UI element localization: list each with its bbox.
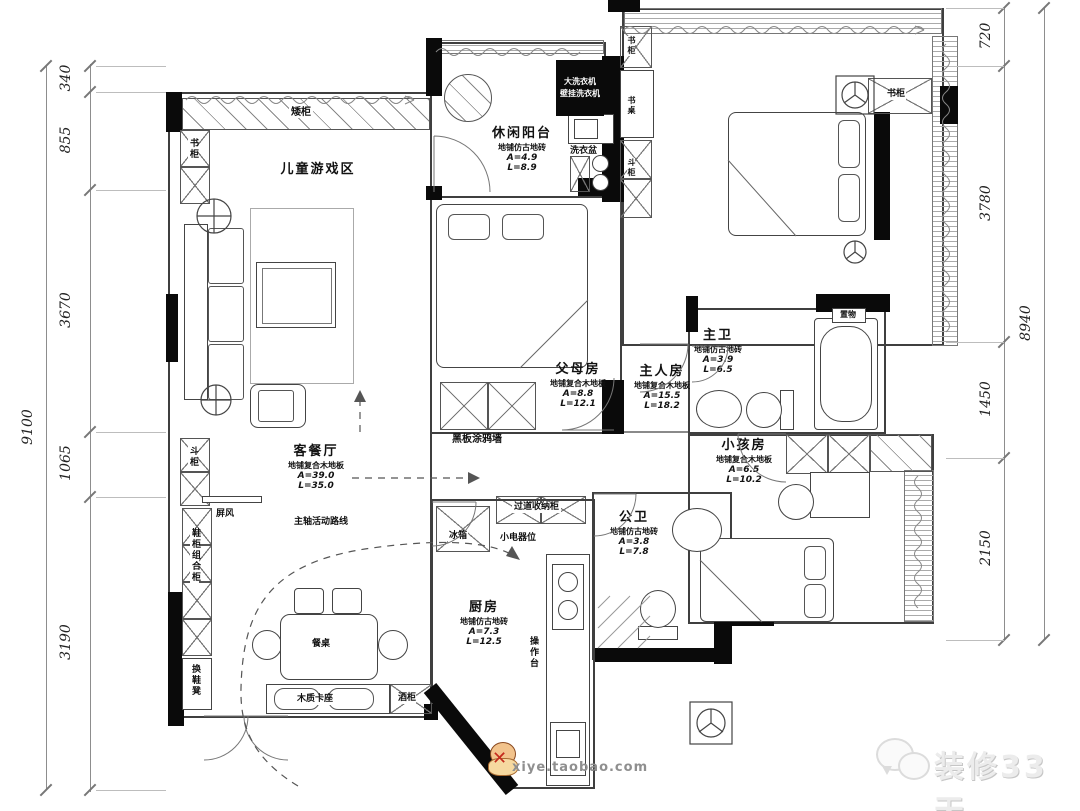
stove-burner <box>558 572 578 592</box>
wall-top-right-corner <box>940 86 958 124</box>
blackboard-label: 黑板涂鸦墙 <box>452 434 502 445</box>
wall-top-piece <box>608 0 640 12</box>
room-floor: 地铺复合木地板 <box>716 454 772 465</box>
dim-total-value: 8940 <box>1018 299 1034 347</box>
room-area: A=8.8 <box>550 389 606 399</box>
dining-table-label: 餐桌 <box>312 640 330 650</box>
balcony-cabinet-cell <box>570 156 590 192</box>
dim-left-total-line <box>46 66 47 790</box>
folding-screen <box>202 496 262 503</box>
room-floor: 地铺仿古地砖 <box>492 142 552 153</box>
room-name: 主卫 <box>694 324 742 343</box>
room-area: A=39.0 <box>288 471 344 481</box>
master-top-window-band <box>624 8 942 34</box>
ac-fan-icon <box>690 702 732 744</box>
room-label-public-bath: 公卫 地铺仿古地砖 A=3.8 L=7.8 <box>610 506 658 557</box>
wall-balcony-left-bottom <box>426 186 442 200</box>
shoe-cabinet-cell <box>182 582 212 619</box>
wall-balcony-left-top <box>426 38 442 96</box>
hall-partition-line <box>622 431 688 433</box>
dining-chair <box>294 588 324 614</box>
room-name: 父母房 <box>550 358 606 377</box>
wall-public-bath-bottom <box>594 648 720 662</box>
laundry-sink-basin <box>574 119 598 139</box>
dim-value: 720 <box>978 12 994 60</box>
mascot-cross: ✕ <box>492 748 507 769</box>
parents-wardrobe-cell <box>488 382 536 430</box>
dim-extension <box>946 66 1004 67</box>
pbath-sink <box>672 508 722 552</box>
dim-value: 3190 <box>58 618 74 666</box>
room-floor: 地铺仿古地砖 <box>460 616 508 627</box>
balcony-window-band <box>432 40 604 54</box>
room-label-kids: 小孩房 地铺复合木地板 A=6.5 L=10.2 <box>716 434 772 485</box>
room-length: L=35.0 <box>288 481 344 491</box>
watermark-brand: 装修33天 <box>934 742 1080 811</box>
room-area: A=3.9 <box>694 355 742 365</box>
room-length: L=10.2 <box>716 475 772 485</box>
sofa-cushion <box>208 286 244 342</box>
dim-extension <box>96 66 166 67</box>
room-floor: 地铺复合木地板 <box>288 460 344 471</box>
room-label-balcony: 休闲阳台 地铺仿古地砖 A=4.9 L=8.9 <box>492 122 552 173</box>
mbath-toilet-tank <box>780 390 794 430</box>
dim-value: 1450 <box>978 375 994 423</box>
wechat-bubble-small <box>898 752 930 780</box>
dim-extension <box>96 190 166 191</box>
route-label: 主轴活动路线 <box>294 518 348 528</box>
room-length: L=18.2 <box>634 401 690 411</box>
room-floor: 地铺复合木地板 <box>550 378 606 389</box>
dim-total-value: 9100 <box>20 403 36 451</box>
dining-stool <box>252 630 282 660</box>
dim-extension <box>946 640 1004 641</box>
room-label-master: 主人房 地铺复合木地板 A=15.5 L=18.2 <box>634 360 690 411</box>
kids-wardrobe-cell <box>828 434 870 474</box>
room-label-kitchen: 厨房 地铺仿古地砖 A=7.3 L=12.5 <box>460 596 508 647</box>
parents-bed-pillow <box>448 214 490 240</box>
room-area: A=3.8 <box>610 537 658 547</box>
room-name: 客餐厅 <box>288 440 344 459</box>
floor-plan: 矮柜 书柜 斗柜 鞋柜组合柜 换鞋凳 书柜 书桌 斗柜 书柜 过道收纳柜 冰箱 … <box>0 0 1080 811</box>
bench-label: 换鞋凳 <box>190 664 199 697</box>
wall-top-left-corner <box>166 92 182 132</box>
armchair-cushion <box>258 390 294 422</box>
shoe-cabinet-cell <box>182 619 212 656</box>
balcony-basin <box>592 174 609 191</box>
kids-wardrobe-cell <box>786 434 828 474</box>
room-label-master-bath: 主卫 地铺仿古地砖 A=3.9 L=6.5 <box>694 324 742 375</box>
room-name: 儿童游戏区 <box>280 158 355 177</box>
appliance-spot-label: 小电器位 <box>500 534 536 544</box>
dim-value: 1065 <box>58 439 74 487</box>
dim-right-total-line <box>1044 8 1045 640</box>
bookcase-left-label: 书柜 <box>188 138 197 160</box>
door-arc-entry-left <box>204 716 248 760</box>
fridge-label: 冰箱 <box>448 532 468 542</box>
kids-chair <box>778 484 814 520</box>
stove-burner <box>558 600 578 620</box>
counter-label: 操作台 <box>528 636 537 669</box>
pbath-toilet-bowl <box>640 590 676 628</box>
dresser-left-label: 斗柜 <box>188 446 197 468</box>
watermark-site: xiye.taobao.com <box>512 760 648 775</box>
kids-bed-pillow <box>804 546 826 580</box>
room-length: L=7.8 <box>610 547 658 557</box>
parents-wardrobe-cell <box>440 382 488 430</box>
washer-line1: 大洗衣机 <box>556 76 604 88</box>
wechat-bubble-tail <box>882 766 892 775</box>
sofa-cushion <box>208 228 244 284</box>
dining-stool <box>378 630 408 660</box>
booth-label: 木质卡座 <box>296 695 334 705</box>
dim-value: 2150 <box>978 524 994 572</box>
shoe-combo-label: 鞋柜组合柜 <box>190 528 199 583</box>
master-desk-label: 书桌 <box>627 96 635 116</box>
dim-extension <box>96 432 166 433</box>
dim-extension <box>946 458 1004 459</box>
room-name: 主人房 <box>634 360 690 379</box>
wall-left-mid <box>166 294 178 362</box>
room-length: L=12.1 <box>550 399 606 409</box>
dim-right-segment-line <box>1004 8 1005 640</box>
wine-cabinet-label: 酒柜 <box>398 694 416 704</box>
room-name: 厨房 <box>460 596 508 615</box>
balcony-basin <box>592 155 609 172</box>
dim-value: 855 <box>58 116 74 164</box>
room-length: L=6.5 <box>694 365 742 375</box>
kitchen-sink-basin <box>556 730 580 758</box>
room-length: L=8.9 <box>492 163 552 173</box>
room-floor: 地铺仿古地砖 <box>610 526 658 537</box>
master-dresser-cell <box>620 179 652 218</box>
dim-value: 3780 <box>978 179 994 227</box>
bathtub-inner <box>820 326 872 422</box>
dim-extension <box>96 790 166 791</box>
sofa-cushion <box>208 344 244 400</box>
arrowhead <box>468 472 480 484</box>
sofa-back <box>184 224 208 400</box>
kids-right-window-band <box>904 470 934 622</box>
dim-extension <box>96 92 166 93</box>
master-bed-pillow <box>838 120 860 168</box>
bookcase-left-cell <box>180 167 210 204</box>
master-right-window-band <box>932 36 958 346</box>
screen-label: 屏风 <box>216 510 234 520</box>
fridge-box <box>436 506 490 552</box>
master-bed-pillow <box>838 174 860 222</box>
wall-master-right <box>874 112 890 240</box>
dim-extension <box>946 342 1004 343</box>
wall-niche-label: 置物 <box>840 311 856 320</box>
hall-storage-label: 过道收纳柜 <box>512 503 561 513</box>
dim-extension <box>946 8 1004 9</box>
mbath-toilet-bowl <box>746 392 782 428</box>
room-floor: 地铺复合木地板 <box>634 380 690 391</box>
washer-line2: 壁挂洗衣机 <box>556 88 604 100</box>
dim-value: 3670 <box>58 286 74 334</box>
parents-bed-pillow <box>502 214 544 240</box>
washer-box: 大洗衣机 壁挂洗衣机 <box>556 60 604 116</box>
low-cabinet-label: 矮柜 <box>289 107 313 118</box>
mbath-sink <box>696 390 742 428</box>
room-name: 小孩房 <box>716 434 772 453</box>
room-label-parents: 父母房 地铺复合木地板 A=8.8 L=12.1 <box>550 358 606 409</box>
master-bookcase-label: 书柜 <box>627 36 635 56</box>
bookcase-top-right-label: 书柜 <box>886 90 906 100</box>
kids-desk <box>810 472 870 518</box>
room-area: A=6.5 <box>716 465 772 475</box>
master-left-bookcase <box>620 26 652 68</box>
room-name: 休闲阳台 <box>492 122 552 141</box>
room-name: 公卫 <box>610 506 658 525</box>
room-length: L=12.5 <box>460 637 508 647</box>
wechat-logo <box>876 736 928 784</box>
arrowhead <box>506 546 520 560</box>
pbath-toilet-tank <box>638 626 678 640</box>
room-label-living-dining: 客餐厅 地铺复合木地板 A=39.0 L=35.0 <box>288 440 344 491</box>
master-desk <box>620 70 654 138</box>
room-label-play: 儿童游戏区 <box>280 158 355 177</box>
room-area: A=4.9 <box>492 153 552 163</box>
dining-chair <box>332 588 362 614</box>
room-floor: 地铺仿古地砖 <box>694 344 742 355</box>
room-area: A=15.5 <box>634 391 690 401</box>
kids-window-seat <box>870 434 932 472</box>
wall-left-lower <box>168 592 182 710</box>
dim-extension <box>96 497 166 498</box>
room-area: A=7.3 <box>460 627 508 637</box>
dim-value: 340 <box>58 54 74 102</box>
balcony-round-mat <box>444 74 492 122</box>
kids-bed-pillow <box>804 584 826 618</box>
door-arc-entry-right <box>244 716 288 760</box>
master-dresser-label: 斗柜 <box>627 158 635 178</box>
play-table-inner <box>262 268 332 324</box>
booth-pillow <box>328 688 374 710</box>
master-dresser-cell <box>620 140 652 179</box>
